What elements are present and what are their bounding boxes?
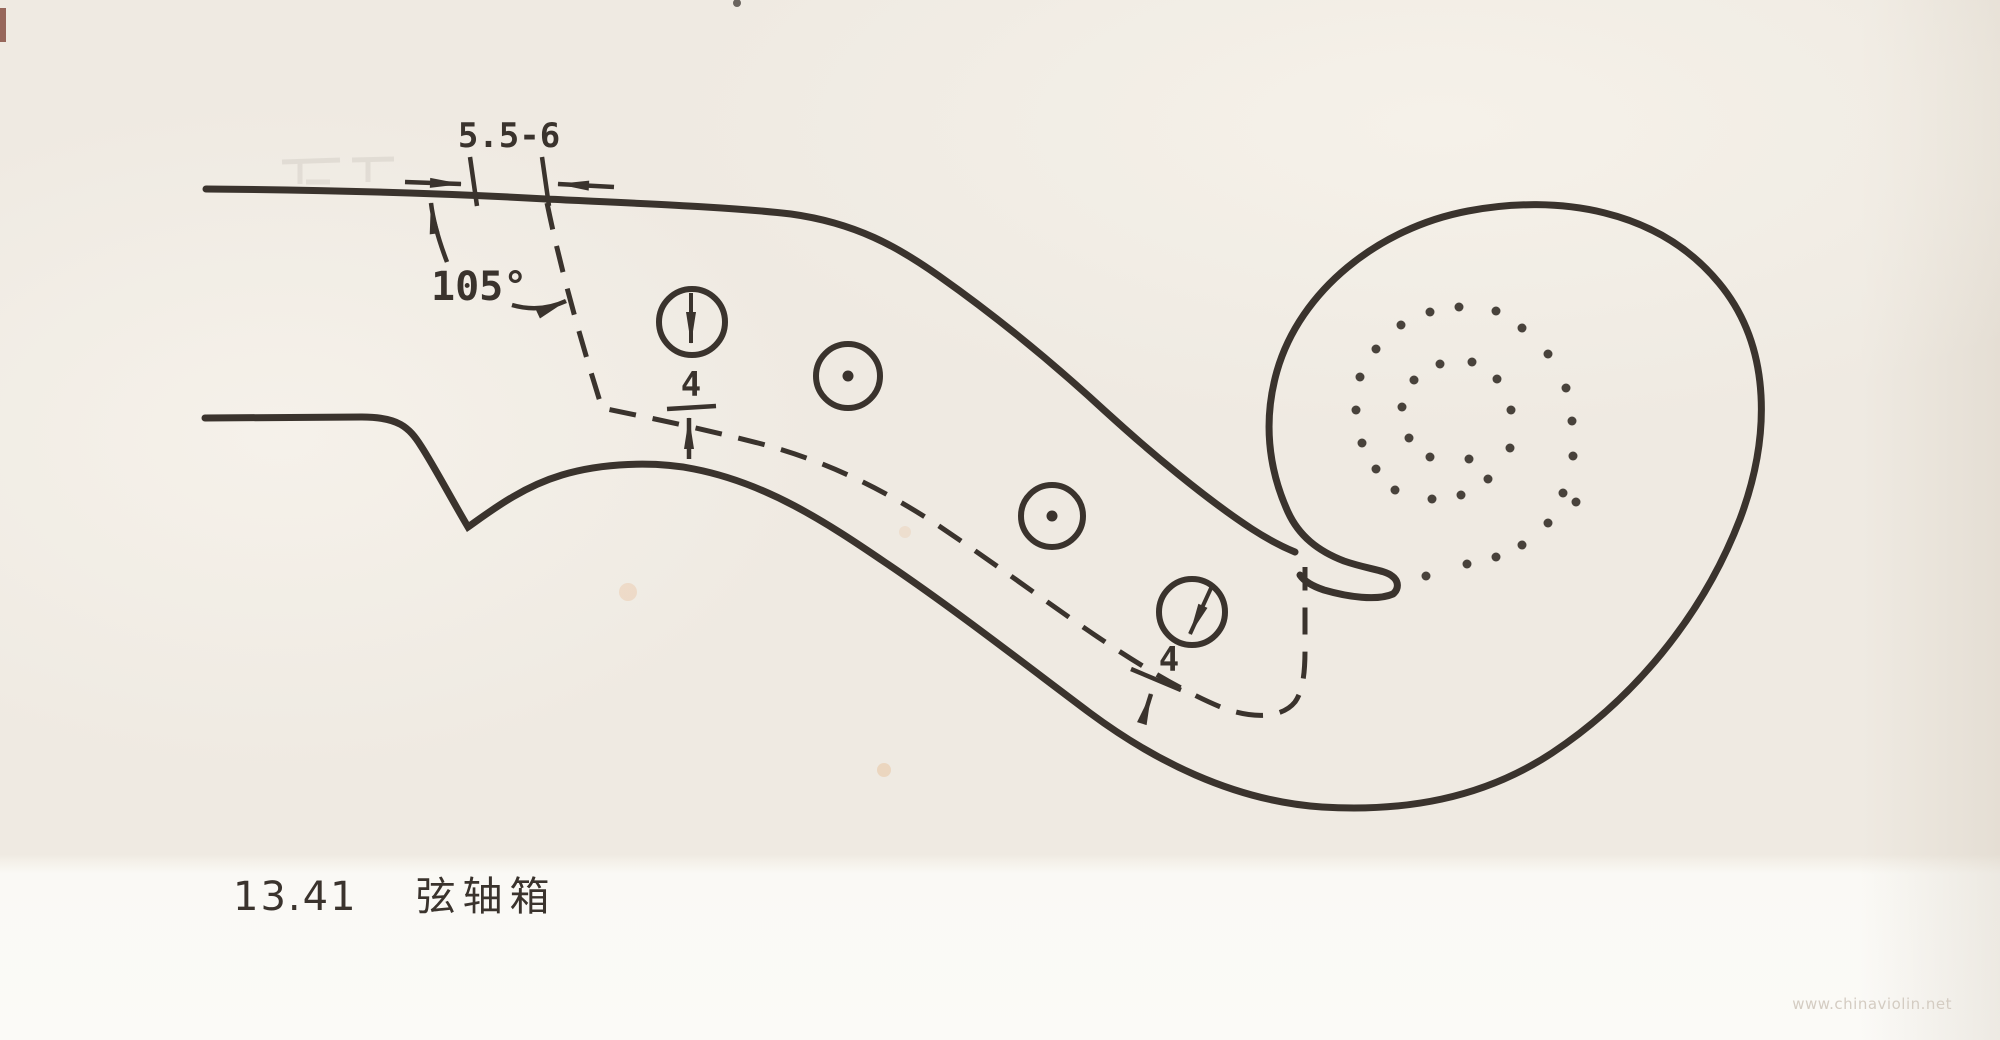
stipple-dot xyxy=(1455,303,1464,312)
lower-hole-depth-label: 4 xyxy=(1159,640,1179,680)
stipple-dot xyxy=(1398,403,1407,412)
floor-tick xyxy=(667,406,716,409)
neck-top-and-pegbox-wall-path xyxy=(206,189,1295,552)
figure-number: 13.41 xyxy=(233,874,358,920)
up-arrow-to-floor xyxy=(1142,694,1151,723)
stipple-dot xyxy=(1493,375,1502,384)
dimension-arrow-left xyxy=(405,182,461,184)
peg-hole-circle xyxy=(1159,579,1225,645)
scanned-page: 5.5-6 105° 4 4 13.41 弦轴箱 www.chinaviolin… xyxy=(0,0,2000,1040)
stipple-dot xyxy=(1457,491,1466,500)
upper-hole-depth-label: 4 xyxy=(681,365,701,405)
pegbox-angle-dimension: 105° xyxy=(431,203,566,310)
stipple-dot xyxy=(1436,360,1445,369)
stipple-dot xyxy=(1484,475,1493,484)
peg-holes-layer xyxy=(659,289,1225,645)
stipple-dot xyxy=(1568,417,1577,426)
stipple-dot xyxy=(1572,498,1581,507)
stipple-dot xyxy=(1372,345,1381,354)
stipple-dot xyxy=(1391,486,1400,495)
stipple-dot xyxy=(1422,572,1431,581)
peg-hole-center-dot xyxy=(1047,511,1058,522)
scan-artifacts xyxy=(0,0,911,777)
stipple-dot xyxy=(1492,553,1501,562)
angle-leader-to-top-line xyxy=(431,203,447,262)
nut-width-label: 5.5-6 xyxy=(458,116,560,156)
stipple-dot xyxy=(1507,406,1516,415)
scroll-stipple-layer xyxy=(1352,303,1581,581)
stipple-dot xyxy=(1372,465,1381,474)
stipple-dot xyxy=(1465,455,1474,464)
stipple-dot xyxy=(1506,444,1515,453)
stipple-dot xyxy=(1410,376,1419,385)
stipple-dot xyxy=(1428,495,1437,504)
stipple-dot xyxy=(1468,358,1477,367)
watermark: www.chinaviolin.net xyxy=(1792,995,1952,1013)
stipple-dot xyxy=(1358,439,1367,448)
peg-hole-center-dot xyxy=(843,371,854,382)
stipple-dot xyxy=(1352,406,1361,415)
stipple-dot xyxy=(1492,307,1501,316)
stipple-dot xyxy=(1518,541,1527,550)
stipple-dot xyxy=(1559,489,1568,498)
figure-caption: 13.41 弦轴箱 xyxy=(233,864,557,922)
stipple-dot xyxy=(1463,560,1472,569)
pegbox-angle-label: 105° xyxy=(431,264,527,310)
dimension-arrow-right xyxy=(558,184,614,187)
figure-title: 弦轴箱 xyxy=(416,864,557,922)
pegbox-floor-hidden-line xyxy=(547,203,1305,715)
stipple-dot xyxy=(1569,452,1578,461)
stipple-dot xyxy=(1562,384,1571,393)
stipple-dot xyxy=(1405,434,1414,443)
stipple-dot xyxy=(1518,324,1527,333)
stipple-dot xyxy=(1356,373,1365,382)
stipple-dot xyxy=(1544,350,1553,359)
stipple-dot xyxy=(1426,453,1435,462)
stipple-dot xyxy=(1426,308,1435,317)
upper-hole-depth-dimension: 4 xyxy=(667,365,716,459)
stipple-dot xyxy=(1397,321,1406,330)
stipple-dot xyxy=(1544,519,1553,528)
ghost-print xyxy=(282,159,394,184)
peg-hole-axis-arrow xyxy=(1190,586,1212,634)
